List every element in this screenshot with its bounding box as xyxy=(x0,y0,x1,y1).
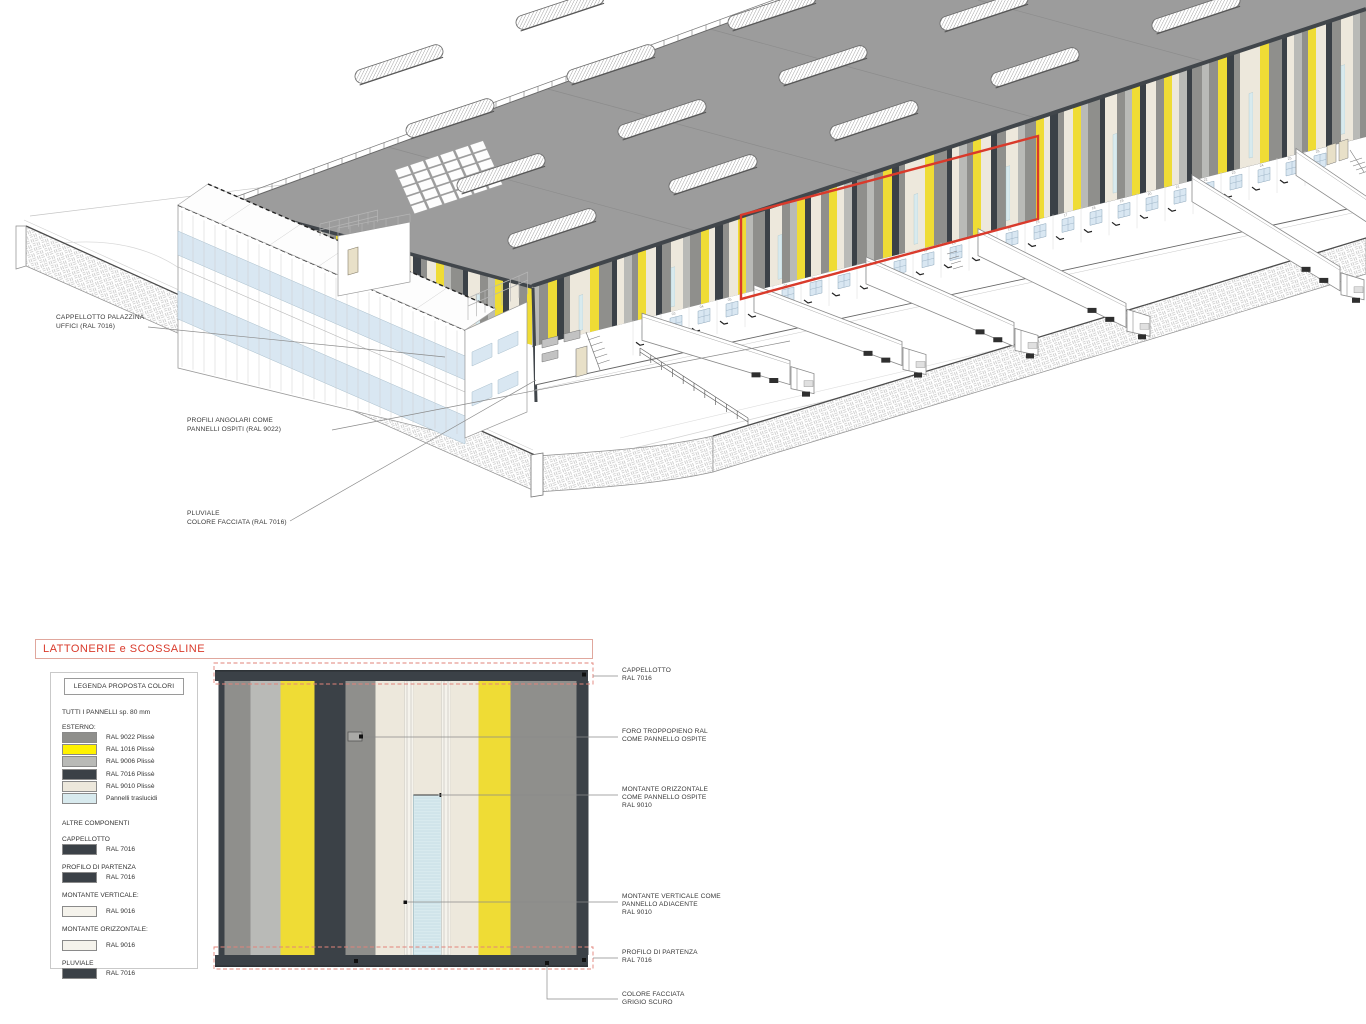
legend-esterno-heading: ESTERNO: xyxy=(62,724,197,731)
legend-component-row: RAL 7016 xyxy=(62,968,197,979)
legend-swatch-ral7016 xyxy=(62,769,97,780)
legend-subtitle: TUTTI I PANNELLI sp. 80 mm xyxy=(62,709,197,716)
annotation-line: RAL 7016 xyxy=(622,675,671,683)
legend-row-label: RAL 1016 Plissè xyxy=(106,746,155,753)
legend-box: LEGENDA PROPOSTA COLORI TUTTI I PANNELLI… xyxy=(50,672,198,969)
legend-swatch-ral9006 xyxy=(62,756,97,767)
detail-panel-stripes xyxy=(219,681,589,955)
legend-component-heading: PLUVIALE xyxy=(62,960,197,967)
iso-label-line: UFFICI (RAL 7016) xyxy=(56,323,144,332)
legend-component-heading: PROFILO DI PARTENZA xyxy=(62,864,197,871)
legend-row-label: RAL 9006 Plissè xyxy=(106,758,155,765)
iso-label-line: COLORE FACCIATA (RAL 7016) xyxy=(187,519,287,528)
legend-component-heading: MONTANTE VERTICALE: xyxy=(62,892,197,899)
legend-row-label: Pannelli traslucidi xyxy=(106,795,157,802)
legend-component-row: RAL 7016 xyxy=(62,844,197,855)
legend-component-row: RAL 7016 xyxy=(62,872,197,883)
legend-row-label: RAL 7016 Plissè xyxy=(106,771,155,778)
drawing-sheet: 0203040506070809101112131415161718192021… xyxy=(0,0,1366,1024)
annotation-line: CAPPELLOTTO xyxy=(622,667,671,675)
legend-row: RAL 7016 Plissè xyxy=(62,768,197,780)
axonometric-view: 0203040506070809101112131415161718192021… xyxy=(0,0,1366,640)
skylight xyxy=(353,43,445,86)
iso-label-pluviale: PLUVIALECOLORE FACCIATA (RAL 7016) xyxy=(187,510,287,528)
legend-altre-heading: ALTRE COMPONENTI xyxy=(62,820,197,827)
legend-row-label: RAL 9022 Plissè xyxy=(106,734,155,741)
detail-annotation-profilo-di-partenza: PROFILO DI PARTENZARAL 7016 xyxy=(622,949,698,965)
annotation-line: COME PANNELLO OSPITE xyxy=(622,736,708,744)
detail-annotation-cappellotto: CAPPELLOTTORAL 7016 xyxy=(622,667,671,683)
legend-swatch-ral9010 xyxy=(62,781,97,792)
annotation-line: COME PANNELLO OSPITE xyxy=(622,794,708,802)
legend-component-heading: MONTANTE ORIZZONTALE: xyxy=(62,926,197,933)
annotation-line: PANNELLO ADIACENTE xyxy=(622,901,721,909)
annotation-line: RAL 9010 xyxy=(622,909,721,917)
legend-row: RAL 1016 Plissè xyxy=(62,743,197,755)
detail-elevation xyxy=(210,655,625,1024)
legend-row: Pannelli traslucidi xyxy=(62,792,197,804)
iso-label-line: PANNELLI OSPITI (RAL 9022) xyxy=(187,426,281,435)
legend-component-heading: CAPPELLOTTO xyxy=(62,836,197,843)
iso-label-profili-angolari: PROFILI ANGOLARI COMEPANNELLI OSPITI (RA… xyxy=(187,417,281,435)
legend-swatch-ral7016 xyxy=(62,844,97,855)
annotation-line: GRIGIO SCURO xyxy=(622,999,684,1007)
iso-label-line: PROFILI ANGOLARI COME xyxy=(187,417,281,426)
legend-component-value: RAL 7016 xyxy=(106,846,135,853)
annotation-line: MONTANTE VERTICALE COME xyxy=(622,893,721,901)
legend-swatch-ral7016 xyxy=(62,968,97,979)
legend-swatch-ral9022 xyxy=(62,732,97,743)
annotation-line: RAL 7016 xyxy=(622,957,698,965)
annotation-line: PROFILO DI PARTENZA xyxy=(622,949,698,957)
legend-row: RAL 9010 Plissè xyxy=(62,780,197,792)
annotation-line: RAL 9010 xyxy=(622,802,708,810)
annotation-line: COLORE FACCIATA xyxy=(622,991,684,999)
legend-swatch-ral9016 xyxy=(62,906,97,917)
legend-row: RAL 9006 Plissè xyxy=(62,756,197,768)
legend-component-row: RAL 9016 xyxy=(62,906,197,917)
legend-title: LEGENDA PROPOSTA COLORI xyxy=(64,678,184,695)
legend-component-value: RAL 7016 xyxy=(106,970,135,977)
detail-annotation-montante-orizzontale: MONTANTE ORIZZONTALECOME PANNELLO OSPITE… xyxy=(622,786,708,809)
legend-component-value: RAL 7016 xyxy=(106,874,135,881)
legend-component-row: RAL 9016 xyxy=(62,940,197,951)
legend-component-value: RAL 9016 xyxy=(106,942,135,949)
detail-annotation-montante-verticale: MONTANTE VERTICALE COMEPANNELLO ADIACENT… xyxy=(622,893,721,916)
section-title: LATTONERIE e SCOSSALINE xyxy=(36,640,592,655)
iso-label-line: CAPPELLOTTO PALAZZINA xyxy=(56,314,144,323)
legend-swatch-ral9016 xyxy=(62,940,97,951)
legend-component-value: RAL 9016 xyxy=(106,908,135,915)
detail-annotation-colore-facciata: COLORE FACCIATAGRIGIO SCURO xyxy=(622,991,684,1007)
legend-swatch-ral7016 xyxy=(62,872,97,883)
iso-label-line: PLUVIALE xyxy=(187,510,287,519)
annotation-line: MONTANTE ORIZZONTALE xyxy=(622,786,708,794)
detail-annotation-foro-troppopieno: FORO TROPPOPIENO RALCOME PANNELLO OSPITE xyxy=(622,728,708,744)
annotation-line: FORO TROPPOPIENO RAL xyxy=(622,728,708,736)
legend-swatch-translucent xyxy=(62,793,97,804)
legend-swatch-ral1016_swatch xyxy=(62,744,97,755)
legend-row: RAL 9022 Plissè xyxy=(62,731,197,743)
legend-row-label: RAL 9010 Plissè xyxy=(106,783,155,790)
skylight xyxy=(514,0,606,32)
iso-label-cappellotto-palazzina: CAPPELLOTTO PALAZZINAUFFICI (RAL 7016) xyxy=(56,314,144,332)
